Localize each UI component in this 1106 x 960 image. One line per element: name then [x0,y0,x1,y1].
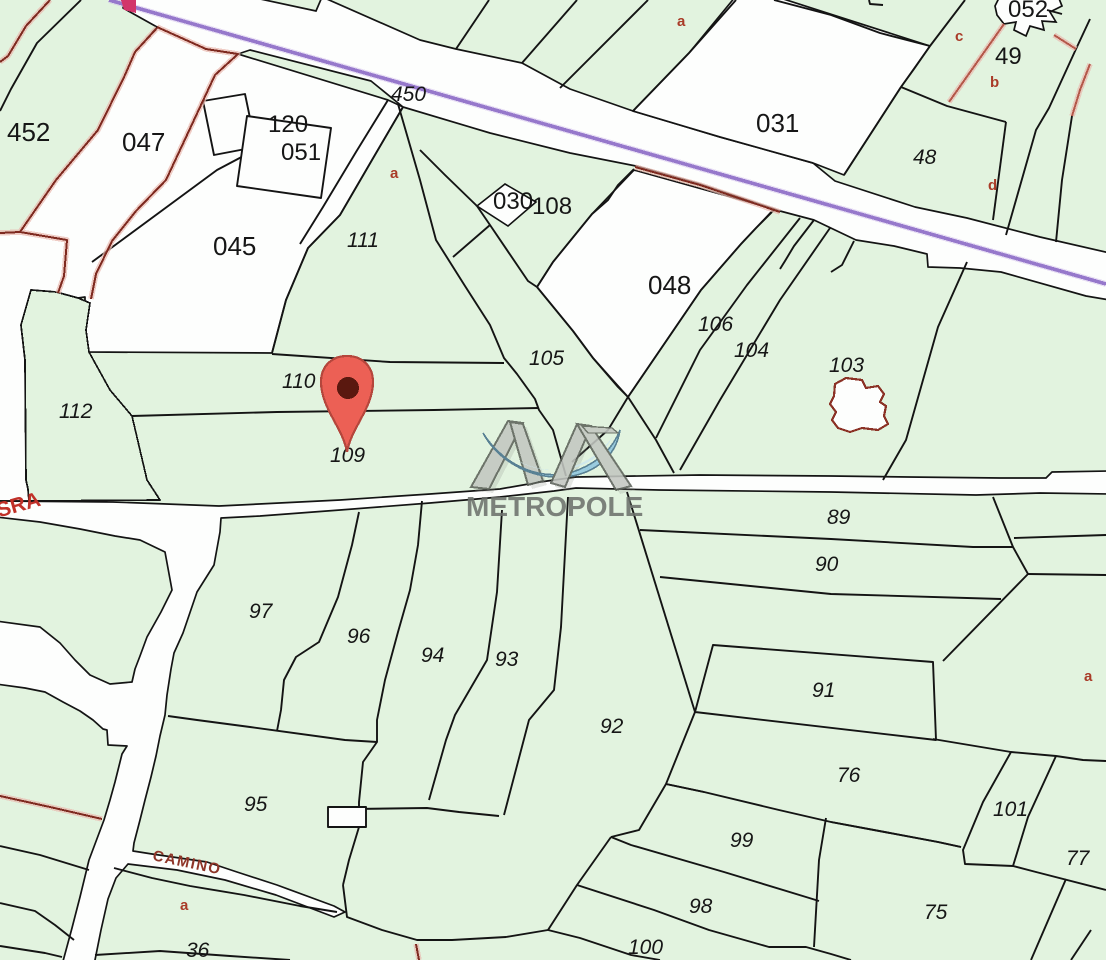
svg-text:a: a [180,897,189,914]
svg-text:75: 75 [924,901,948,924]
svg-text:METROPOLE: METROPOLE [466,491,643,522]
svg-text:92: 92 [600,715,624,738]
svg-text:a: a [1084,668,1093,685]
svg-text:49: 49 [995,43,1022,70]
svg-text:94: 94 [421,644,444,667]
svg-text:110: 110 [282,370,316,393]
svg-text:77: 77 [1066,847,1091,870]
svg-text:030: 030 [493,188,533,215]
svg-text:051: 051 [281,139,321,166]
svg-text:c: c [955,28,963,45]
svg-text:112: 112 [59,400,93,423]
svg-text:d: d [988,177,997,194]
svg-text:045: 045 [213,231,256,261]
svg-text:031: 031 [756,108,799,138]
svg-text:100: 100 [628,936,663,959]
svg-text:450: 450 [391,83,426,106]
svg-text:89: 89 [827,506,851,529]
svg-text:95: 95 [244,793,268,816]
svg-text:98: 98 [689,895,713,918]
svg-text:b: b [990,74,999,91]
svg-text:91: 91 [812,679,835,702]
svg-text:111: 111 [347,229,379,252]
svg-text:101: 101 [993,798,1028,821]
svg-text:104: 104 [734,339,769,362]
svg-text:76: 76 [837,764,861,787]
svg-text:120: 120 [268,111,308,138]
svg-text:048: 048 [648,270,691,300]
svg-text:48: 48 [913,146,937,169]
svg-text:96: 96 [347,625,371,648]
svg-text:452: 452 [7,117,50,147]
svg-text:a: a [390,165,399,182]
svg-text:90: 90 [815,553,839,576]
svg-text:36: 36 [186,939,210,960]
svg-text:103: 103 [829,354,864,377]
svg-text:97: 97 [249,600,274,623]
svg-text:93: 93 [495,648,519,671]
svg-text:106: 106 [698,313,733,336]
svg-text:052: 052 [1008,0,1048,23]
svg-text:047: 047 [122,127,165,157]
svg-text:105: 105 [529,347,564,370]
svg-text:99: 99 [730,829,754,852]
svg-text:108: 108 [532,193,572,220]
svg-text:a: a [677,13,686,30]
